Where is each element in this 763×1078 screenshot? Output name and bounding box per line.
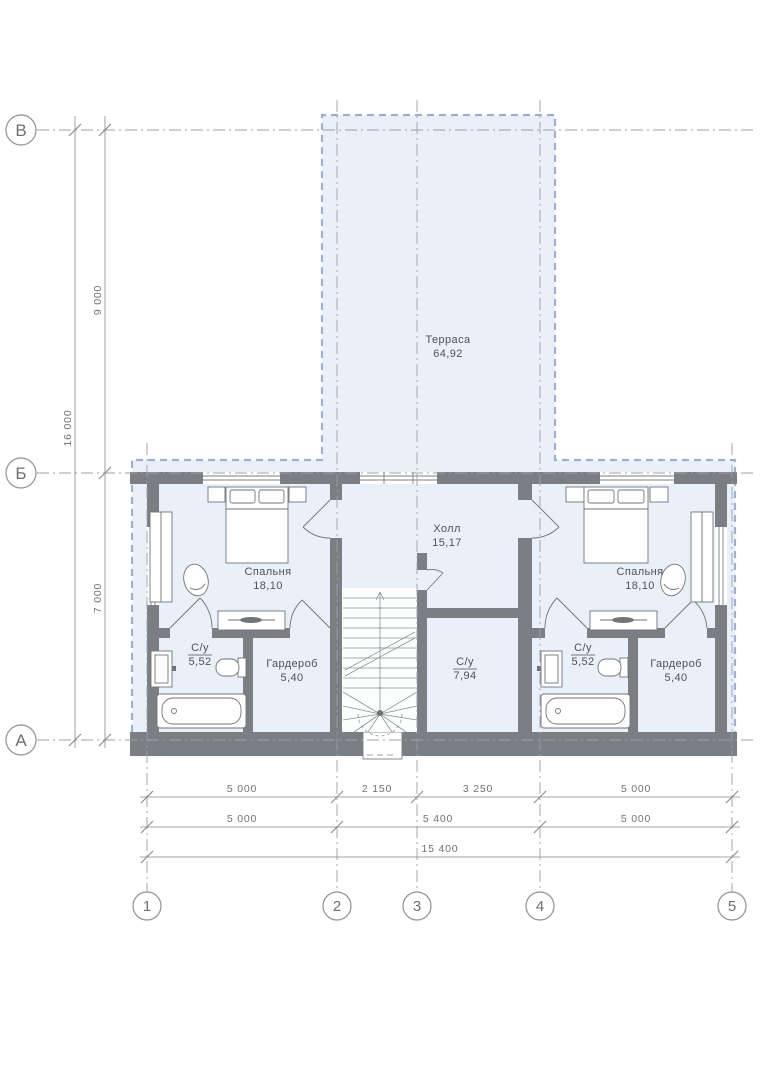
- stair-walkline-start: [377, 710, 383, 716]
- nightstand: [650, 487, 668, 502]
- wardrobe-right-area-value: 5,40: [664, 672, 687, 684]
- dim-label-r2-2: 5 400: [423, 813, 453, 825]
- bedroom-right-area-value: 18,10: [625, 580, 655, 592]
- grid-label-col-2: 2: [333, 898, 341, 915]
- sink-right: [541, 651, 562, 687]
- bedroom-left-label: Спальня: [245, 566, 292, 578]
- bath-right-label: С/у: [574, 642, 592, 654]
- dim-label-r1-1: 5 000: [227, 783, 257, 795]
- dim-label-r2-3: 5 000: [621, 813, 651, 825]
- bath-right-area-value: 5,52: [571, 656, 594, 668]
- grid-bubbles-cols: 1 2 3 4 5: [133, 892, 746, 920]
- dim-label-16000: 16 000: [62, 410, 74, 447]
- window-bedroom-right: [600, 472, 674, 484]
- wardrobe-left-area-value: 5,40: [280, 672, 303, 684]
- window-wall-right: [715, 527, 727, 605]
- hall-label: Холл: [433, 523, 461, 535]
- toilet-left: [216, 659, 239, 676]
- grid-label-row-b: Б: [15, 464, 26, 483]
- dimensions-left: 9 000 7 000 16 000: [62, 116, 111, 748]
- bath-center-area-value: 7,94: [453, 670, 476, 682]
- terrace-floor: [322, 115, 555, 460]
- dim-label-7000: 7 000: [92, 583, 104, 613]
- nightstand: [566, 487, 584, 502]
- dim-label-r1-3: 3 250: [463, 783, 493, 795]
- floor-plan-canvas: 9 000 7 000 16 000 5 000 2 150 3 250 5 0…: [0, 0, 763, 1078]
- floor-plan-page: 9 000 7 000 16 000 5 000 2 150 3 250 5 0…: [0, 0, 763, 1078]
- bath-left-area-value: 5,52: [188, 656, 211, 668]
- dim-label-r2-1: 5 000: [227, 813, 257, 825]
- dim-lines-vertical: [75, 116, 105, 748]
- wardrobe-left-label: Гардероб: [266, 658, 318, 670]
- terrace-label: Терраса: [426, 334, 471, 346]
- grid-label-col-1: 1: [143, 898, 151, 915]
- dresser-knob: [240, 617, 262, 623]
- pillow: [259, 490, 284, 503]
- sink-left: [151, 651, 172, 687]
- dim-label-r1-4: 5 000: [621, 783, 651, 795]
- toilet-right: [598, 659, 621, 676]
- dim-label-9000: 9 000: [92, 285, 104, 315]
- grid-label-row-v: В: [15, 121, 26, 140]
- window-bedroom-left: [203, 472, 280, 484]
- pillow: [618, 490, 644, 503]
- dim-label-r1-2: 2 150: [362, 783, 392, 795]
- terrace-area-value: 64,92: [433, 348, 463, 360]
- bathtub-left: [157, 694, 246, 728]
- pillow: [588, 490, 614, 503]
- grid-label-col-4: 4: [536, 898, 544, 915]
- grid-label-col-5: 5: [728, 898, 736, 915]
- bedroom-left-area-value: 18,10: [253, 580, 283, 592]
- faucet: [172, 666, 176, 671]
- bath-center-label: С/у: [456, 656, 474, 668]
- bathtub-right: [541, 694, 630, 728]
- grid-bubbles-rows: В Б А: [6, 115, 36, 755]
- bedroom-right-label: Спальня: [617, 566, 664, 578]
- grid-label-col-3: 3: [413, 898, 421, 915]
- bath-left-label: С/у: [191, 642, 209, 654]
- hall-area-value: 15,17: [432, 537, 462, 549]
- dresser-knob: [612, 617, 634, 623]
- dim-label-total: 15 400: [422, 843, 459, 855]
- wardrobe-right-label: Гардероб: [650, 658, 702, 670]
- dimensions-bottom: 5 000 2 150 3 250 5 000 5 000 5 400 5 00…: [140, 783, 740, 863]
- terrace-door: [360, 472, 437, 484]
- nightstand: [289, 487, 306, 502]
- pillow: [230, 490, 255, 503]
- nightstand: [208, 487, 225, 502]
- staircase: [342, 588, 417, 736]
- grid-label-row-a: А: [15, 731, 27, 750]
